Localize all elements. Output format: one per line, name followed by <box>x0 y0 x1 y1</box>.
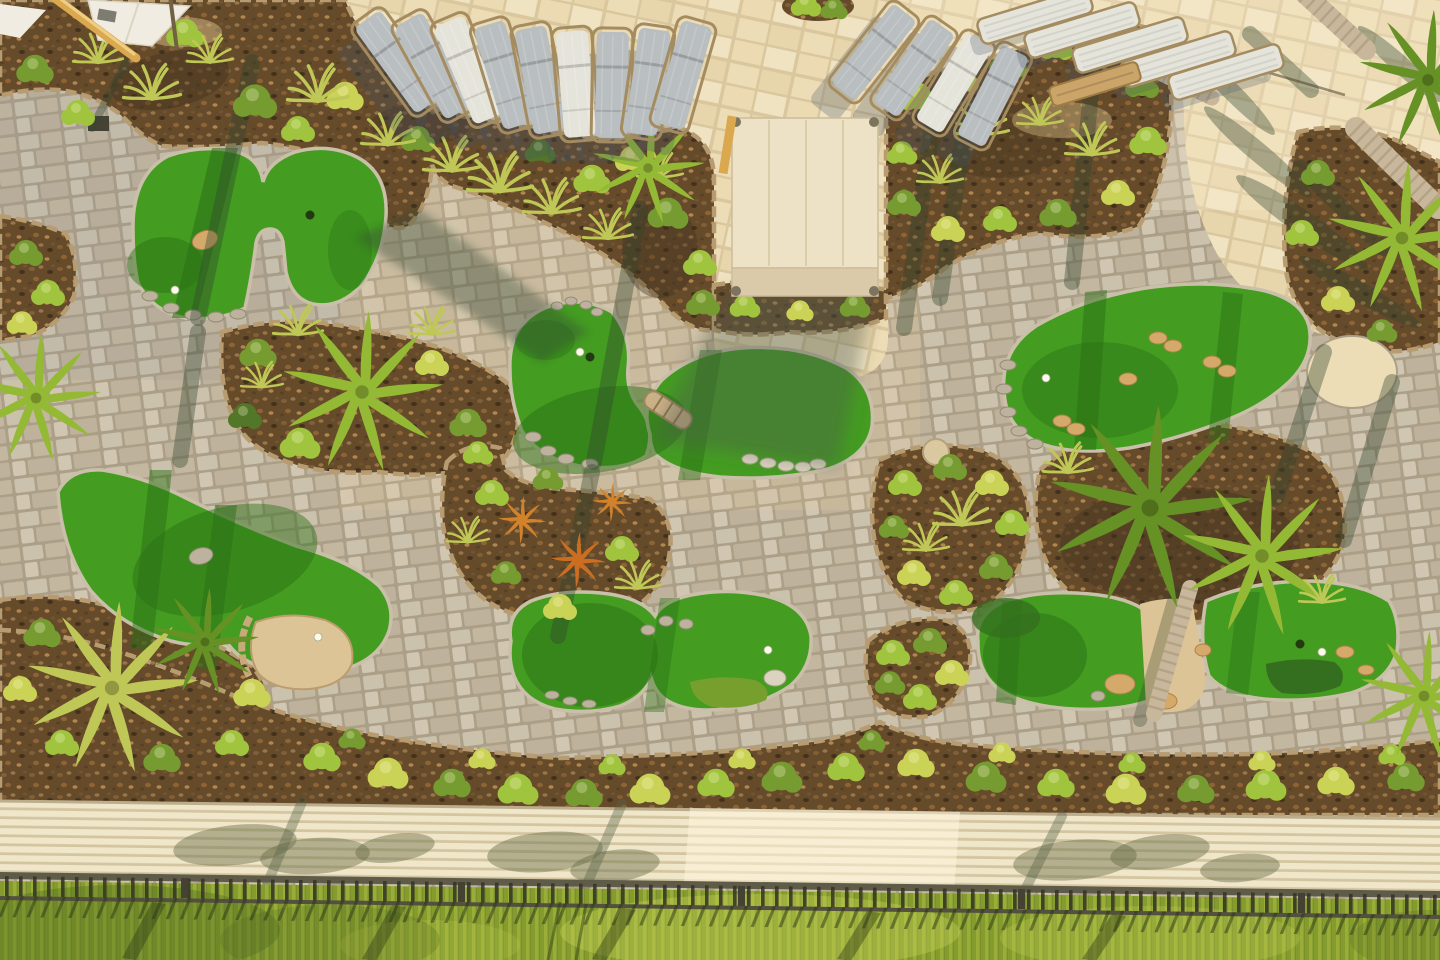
aerial-photo-scene <box>0 0 1440 960</box>
golden-hour-overlay <box>0 0 1440 960</box>
mini-golf-aerial-photo <box>0 0 1440 960</box>
